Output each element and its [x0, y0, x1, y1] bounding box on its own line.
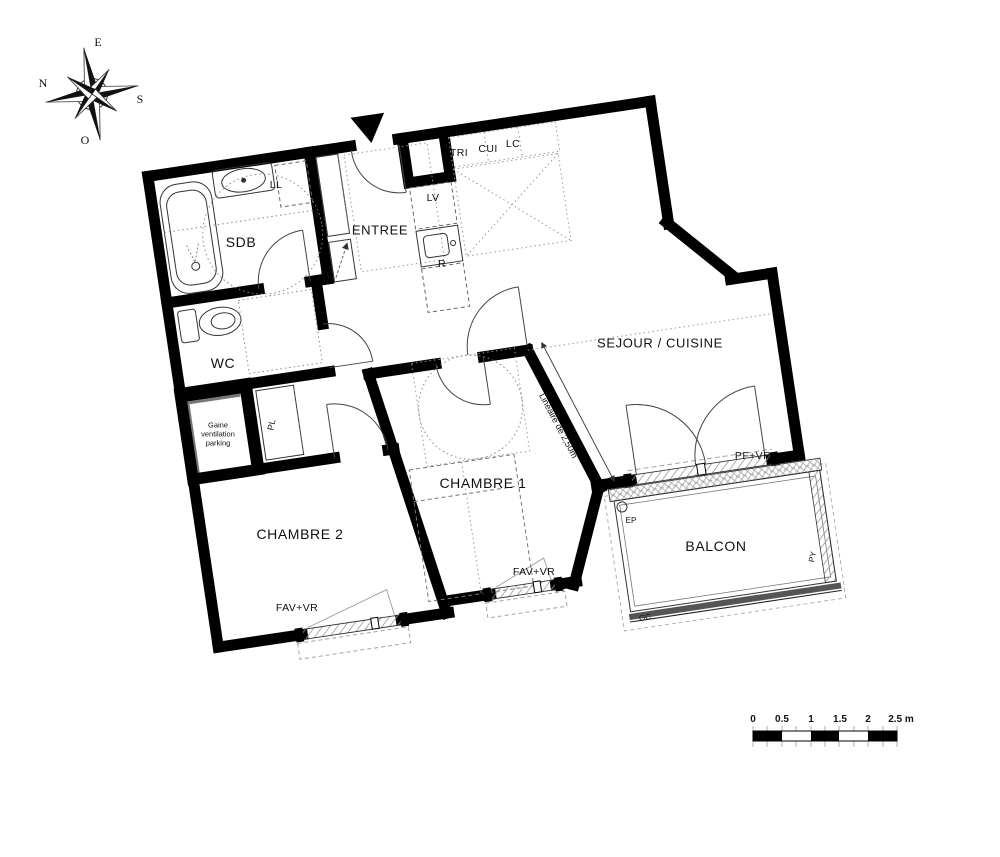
scale-bar — [753, 726, 897, 747]
label-cui: CUI — [478, 144, 497, 155]
walls — [148, 87, 815, 647]
label-washing-machine: LL — [270, 180, 282, 191]
compass-label-east: E — [94, 36, 101, 48]
privacy-screen — [809, 470, 836, 582]
bathroom-fixtures — [156, 156, 330, 308]
label-lc: LC — [506, 139, 520, 150]
sink-icon — [423, 233, 450, 258]
scale-tick-0: 0 — [750, 715, 756, 725]
room-label-wc: WC — [211, 356, 236, 370]
compass-label-south: S — [137, 93, 144, 105]
compass-label-west: O — [81, 134, 90, 146]
entree-closets — [316, 141, 445, 282]
label-window-fav-vr-chambre1: FAV+VR — [513, 567, 555, 578]
guard-rail — [629, 585, 841, 617]
room-label-chambre2: CHAMBRE 2 — [256, 527, 343, 541]
entrance-arrow-icon — [350, 113, 388, 146]
scale-tick-1: 1 — [808, 715, 814, 725]
floor-plan-page: SDB WC ENTREE SEJOUR / CUISINE CHAMBRE 1… — [0, 0, 1000, 857]
room-label-entree: ENTREE — [352, 224, 408, 237]
scale-tick-25m: 2.5 m — [888, 715, 914, 725]
label-dishwasher: LV — [427, 193, 440, 204]
compass-label-north: N — [39, 77, 48, 89]
fridge-box — [422, 263, 470, 313]
door-swings — [241, 131, 540, 466]
label-tri: TRI — [450, 148, 468, 159]
room-label-balcon: BALCON — [685, 539, 746, 553]
dishwasher-box — [409, 182, 457, 230]
label-rainwater-pipe: EP — [626, 517, 637, 525]
floor-plan-drawing — [0, 0, 1000, 857]
label-window-pf-vr: PF+VR — [735, 451, 771, 462]
toilet-tank-icon — [177, 309, 200, 343]
label-ventilation-duct: Gaineventilationparking — [192, 421, 244, 448]
compass-rose-icon — [38, 40, 147, 149]
rainwater-pipe-icon — [616, 501, 627, 512]
room-label-sdb: SDB — [226, 235, 257, 249]
window-fav-vr-chambre2 — [291, 587, 412, 659]
room-label-sejour-cuisine: SEJOUR / CUISINE — [597, 337, 723, 350]
toilet-bowl-icon — [197, 304, 243, 338]
label-window-fav-vr-chambre2: FAV+VR — [276, 603, 318, 614]
scale-tick-05: 0.5 — [775, 715, 789, 725]
chambre2-closet — [256, 385, 304, 460]
scale-tick-15: 1.5 — [833, 715, 847, 725]
scale-tick-2: 2 — [865, 715, 871, 725]
label-fridge: R — [438, 259, 446, 270]
room-label-chambre1: CHAMBRE 1 — [439, 476, 526, 490]
bathtub-faucet-icon — [191, 262, 200, 271]
